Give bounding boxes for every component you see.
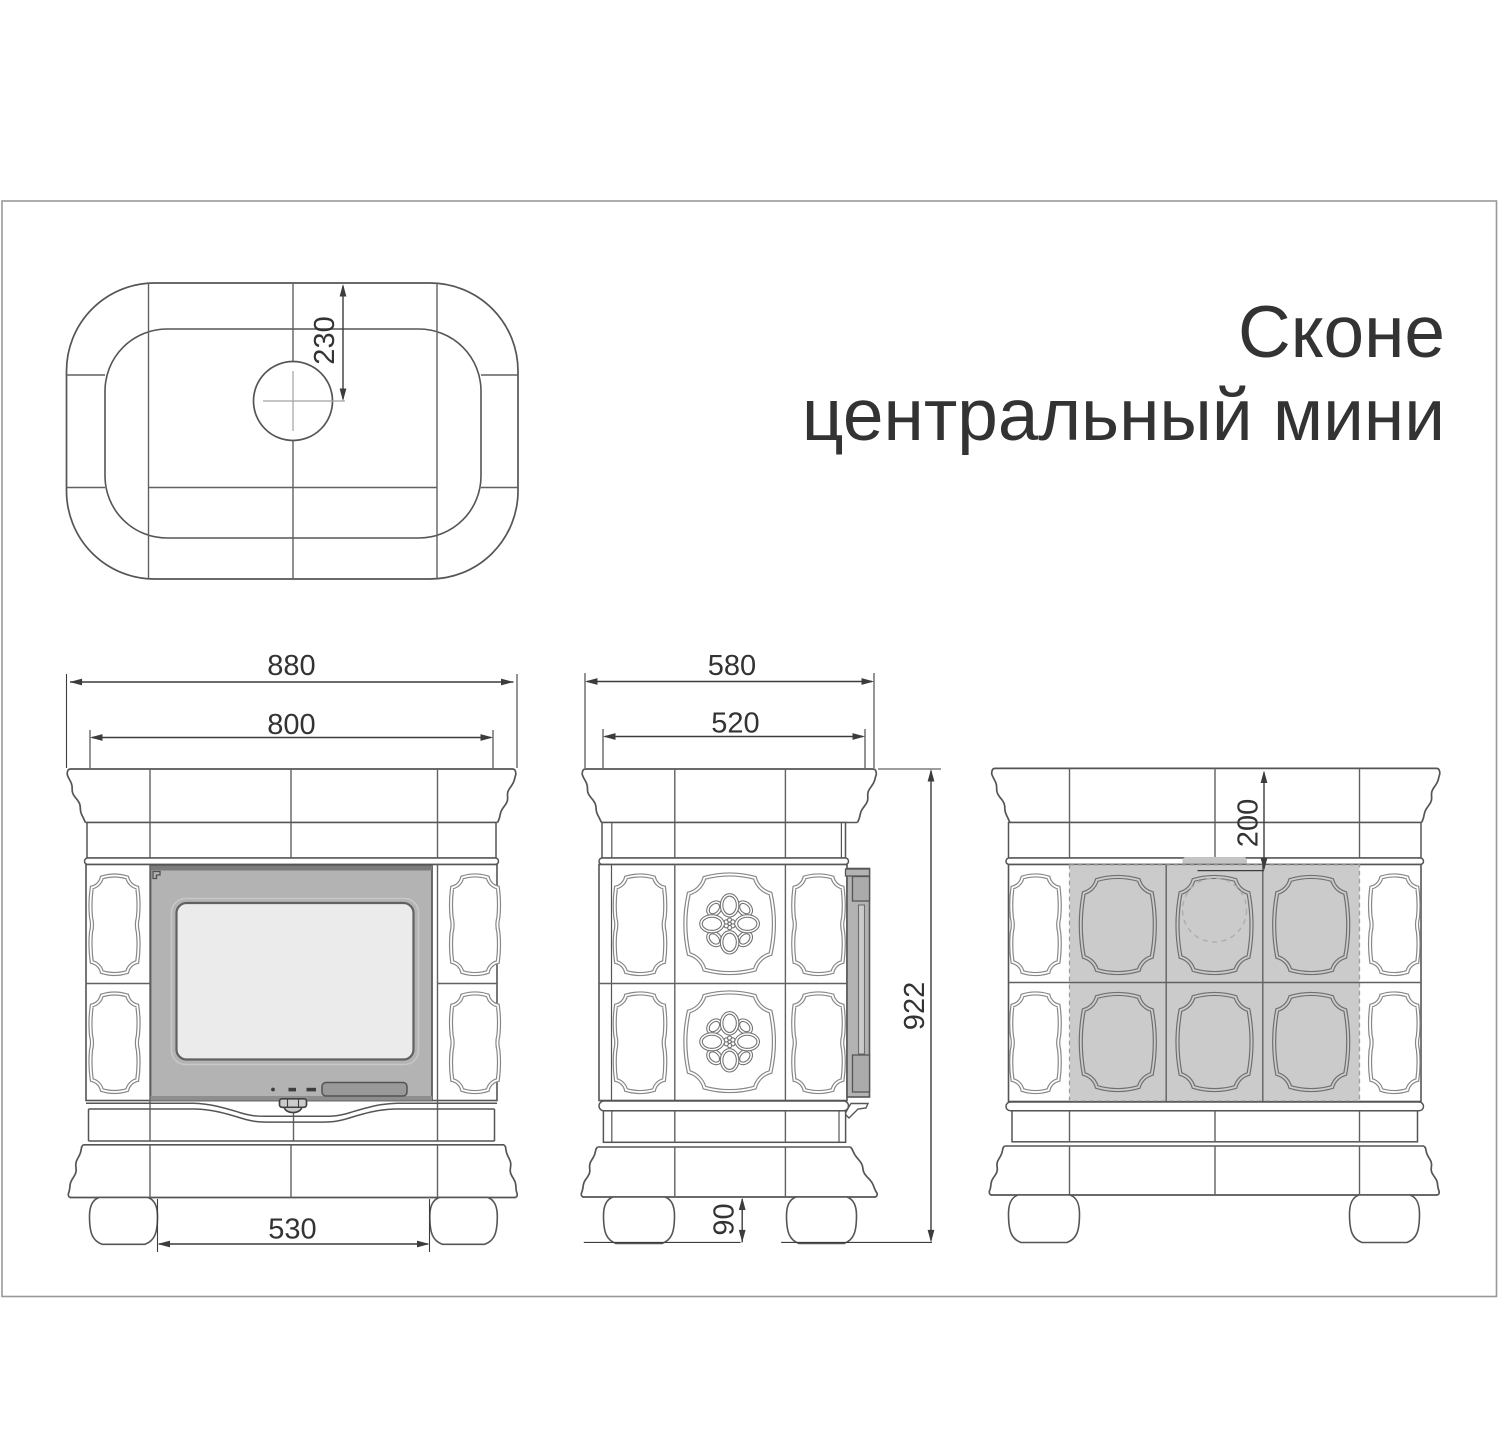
- svg-text:530: 530: [268, 1214, 316, 1246]
- svg-text:800: 800: [267, 709, 315, 741]
- svg-text:90: 90: [709, 1203, 741, 1235]
- svg-text:922: 922: [899, 982, 931, 1030]
- svg-text:520: 520: [711, 708, 759, 740]
- svg-text:230: 230: [309, 316, 341, 364]
- svg-text:центральный мини: центральный мини: [802, 375, 1445, 456]
- svg-text:200: 200: [1233, 799, 1265, 847]
- svg-text:580: 580: [708, 650, 756, 682]
- svg-text:880: 880: [267, 650, 315, 682]
- svg-text:Сконе: Сконе: [1238, 292, 1445, 373]
